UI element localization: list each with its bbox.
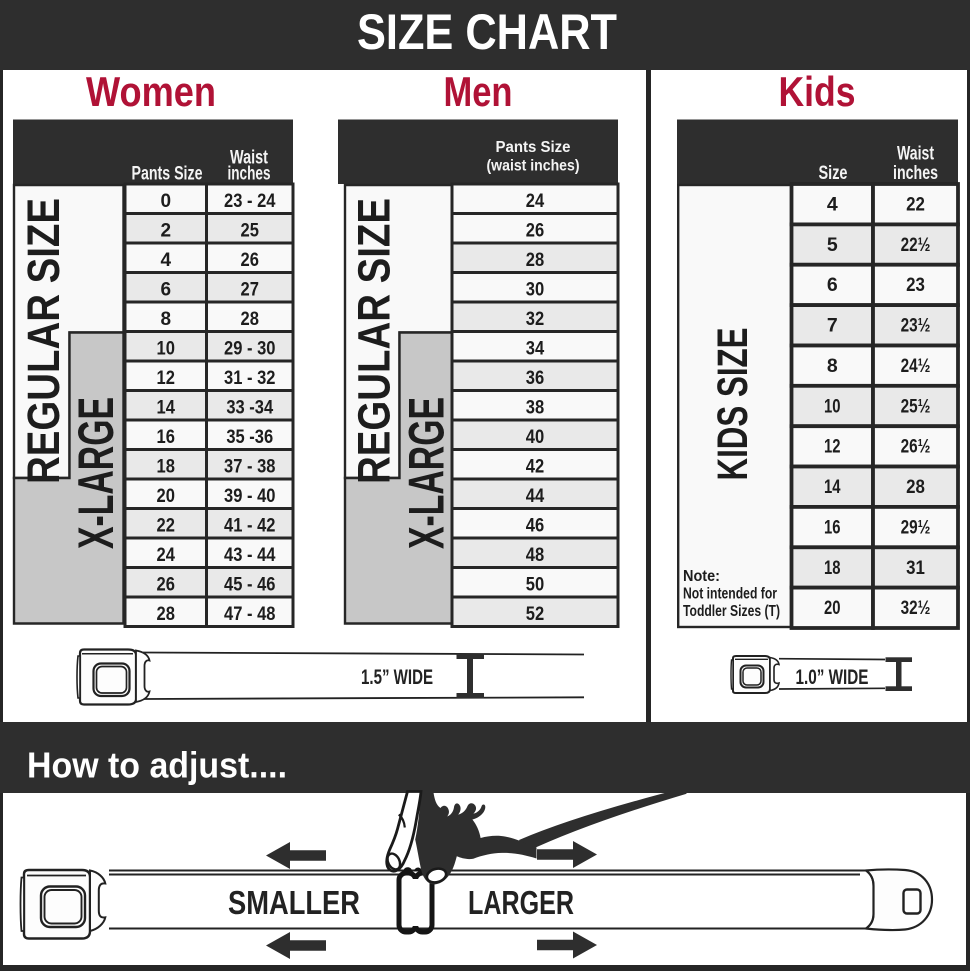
svg-text:25: 25 — [241, 220, 260, 241]
svg-text:6: 6 — [827, 274, 838, 296]
svg-text:16: 16 — [157, 427, 175, 448]
svg-text:SIZE CHART: SIZE CHART — [357, 4, 617, 60]
svg-text:32½: 32½ — [901, 597, 931, 619]
svg-text:5: 5 — [827, 234, 838, 256]
svg-text:29½: 29½ — [901, 516, 931, 538]
svg-text:8: 8 — [827, 355, 838, 377]
svg-text:12: 12 — [824, 436, 841, 458]
svg-text:22½: 22½ — [901, 234, 931, 256]
svg-text:28: 28 — [241, 309, 259, 330]
svg-text:34: 34 — [526, 338, 545, 359]
svg-text:4: 4 — [160, 250, 171, 271]
svg-text:14: 14 — [157, 397, 176, 418]
svg-text:39 - 40: 39 - 40 — [224, 486, 275, 507]
svg-text:X-LARGE: X-LARGE — [68, 397, 124, 549]
svg-text:26: 26 — [157, 575, 175, 596]
svg-text:46: 46 — [526, 516, 544, 537]
svg-text:40: 40 — [526, 427, 544, 448]
svg-text:14: 14 — [824, 476, 841, 498]
svg-text:Note:: Note: — [683, 568, 720, 585]
svg-text:inches: inches — [228, 163, 271, 185]
svg-text:28: 28 — [526, 250, 544, 271]
svg-text:28: 28 — [157, 604, 175, 625]
svg-text:Men: Men — [444, 68, 513, 115]
svg-text:29 - 30: 29 - 30 — [224, 338, 275, 359]
svg-text:24½: 24½ — [901, 355, 931, 377]
svg-text:8: 8 — [160, 309, 171, 330]
svg-text:37 - 38: 37 - 38 — [224, 456, 275, 477]
svg-text:22: 22 — [157, 516, 175, 537]
svg-text:30: 30 — [526, 279, 544, 300]
svg-text:Size: Size — [819, 163, 848, 184]
svg-text:32: 32 — [526, 309, 544, 330]
svg-text:REGULAR SIZE: REGULAR SIZE — [18, 198, 69, 484]
svg-text:26: 26 — [526, 220, 544, 241]
svg-text:4: 4 — [827, 194, 838, 216]
svg-text:24: 24 — [157, 545, 176, 566]
svg-text:12: 12 — [157, 368, 175, 389]
svg-text:Toddler Sizes (T): Toddler Sizes (T) — [683, 603, 780, 620]
svg-text:36: 36 — [526, 368, 544, 389]
svg-text:43 - 44: 43 - 44 — [224, 545, 276, 566]
svg-text:28: 28 — [906, 476, 925, 498]
svg-text:38: 38 — [526, 397, 544, 418]
svg-text:KIDS SIZE: KIDS SIZE — [709, 328, 757, 481]
svg-text:33 -34: 33 -34 — [226, 397, 273, 418]
svg-text:25½: 25½ — [901, 395, 931, 417]
svg-text:20: 20 — [157, 486, 175, 507]
svg-text:Kids: Kids — [779, 68, 856, 115]
svg-text:31: 31 — [906, 557, 925, 579]
svg-text:Waist: Waist — [897, 144, 934, 165]
svg-text:10: 10 — [157, 338, 175, 359]
svg-text:(waist inches): (waist inches) — [487, 158, 580, 175]
svg-text:26½: 26½ — [901, 436, 931, 458]
svg-text:7: 7 — [827, 315, 838, 337]
svg-text:2: 2 — [160, 220, 171, 241]
svg-text:SMALLER: SMALLER — [228, 884, 360, 921]
svg-text:35 -36: 35 -36 — [226, 427, 273, 448]
svg-text:45 - 46: 45 - 46 — [224, 575, 275, 596]
svg-text:10: 10 — [824, 395, 841, 417]
svg-text:52: 52 — [526, 604, 544, 625]
svg-text:1.0” WIDE: 1.0” WIDE — [796, 665, 869, 689]
svg-text:23 - 24: 23 - 24 — [224, 191, 276, 212]
svg-text:23½: 23½ — [901, 315, 931, 337]
svg-text:42: 42 — [526, 456, 544, 477]
svg-text:44: 44 — [526, 486, 545, 507]
svg-text:0: 0 — [160, 191, 171, 212]
svg-text:20: 20 — [824, 597, 841, 619]
svg-text:26: 26 — [241, 250, 259, 271]
svg-text:31 - 32: 31 - 32 — [224, 368, 275, 389]
svg-text:16: 16 — [824, 516, 841, 538]
svg-text:LARGER: LARGER — [468, 884, 574, 921]
svg-text:22: 22 — [906, 194, 925, 216]
svg-text:48: 48 — [526, 545, 544, 566]
svg-text:27: 27 — [241, 279, 259, 300]
svg-text:Women: Women — [86, 68, 216, 115]
svg-text:18: 18 — [157, 456, 175, 477]
svg-text:REGULAR SIZE: REGULAR SIZE — [349, 198, 400, 484]
svg-text:1.5” WIDE: 1.5” WIDE — [361, 665, 433, 689]
svg-text:24: 24 — [526, 191, 545, 212]
svg-text:inches: inches — [893, 163, 938, 184]
svg-text:Not intended for: Not intended for — [683, 586, 777, 603]
svg-text:23: 23 — [906, 274, 925, 296]
svg-text:18: 18 — [824, 557, 841, 579]
svg-text:Pants Size: Pants Size — [496, 139, 571, 156]
svg-text:6: 6 — [160, 279, 171, 300]
svg-text:How to adjust....: How to adjust.... — [27, 745, 287, 786]
svg-text:47 - 48: 47 - 48 — [224, 604, 275, 625]
svg-text:41 - 42: 41 - 42 — [224, 516, 275, 537]
svg-text:Pants Size: Pants Size — [132, 163, 203, 185]
svg-text:50: 50 — [526, 575, 544, 596]
svg-text:X-LARGE: X-LARGE — [399, 397, 455, 549]
